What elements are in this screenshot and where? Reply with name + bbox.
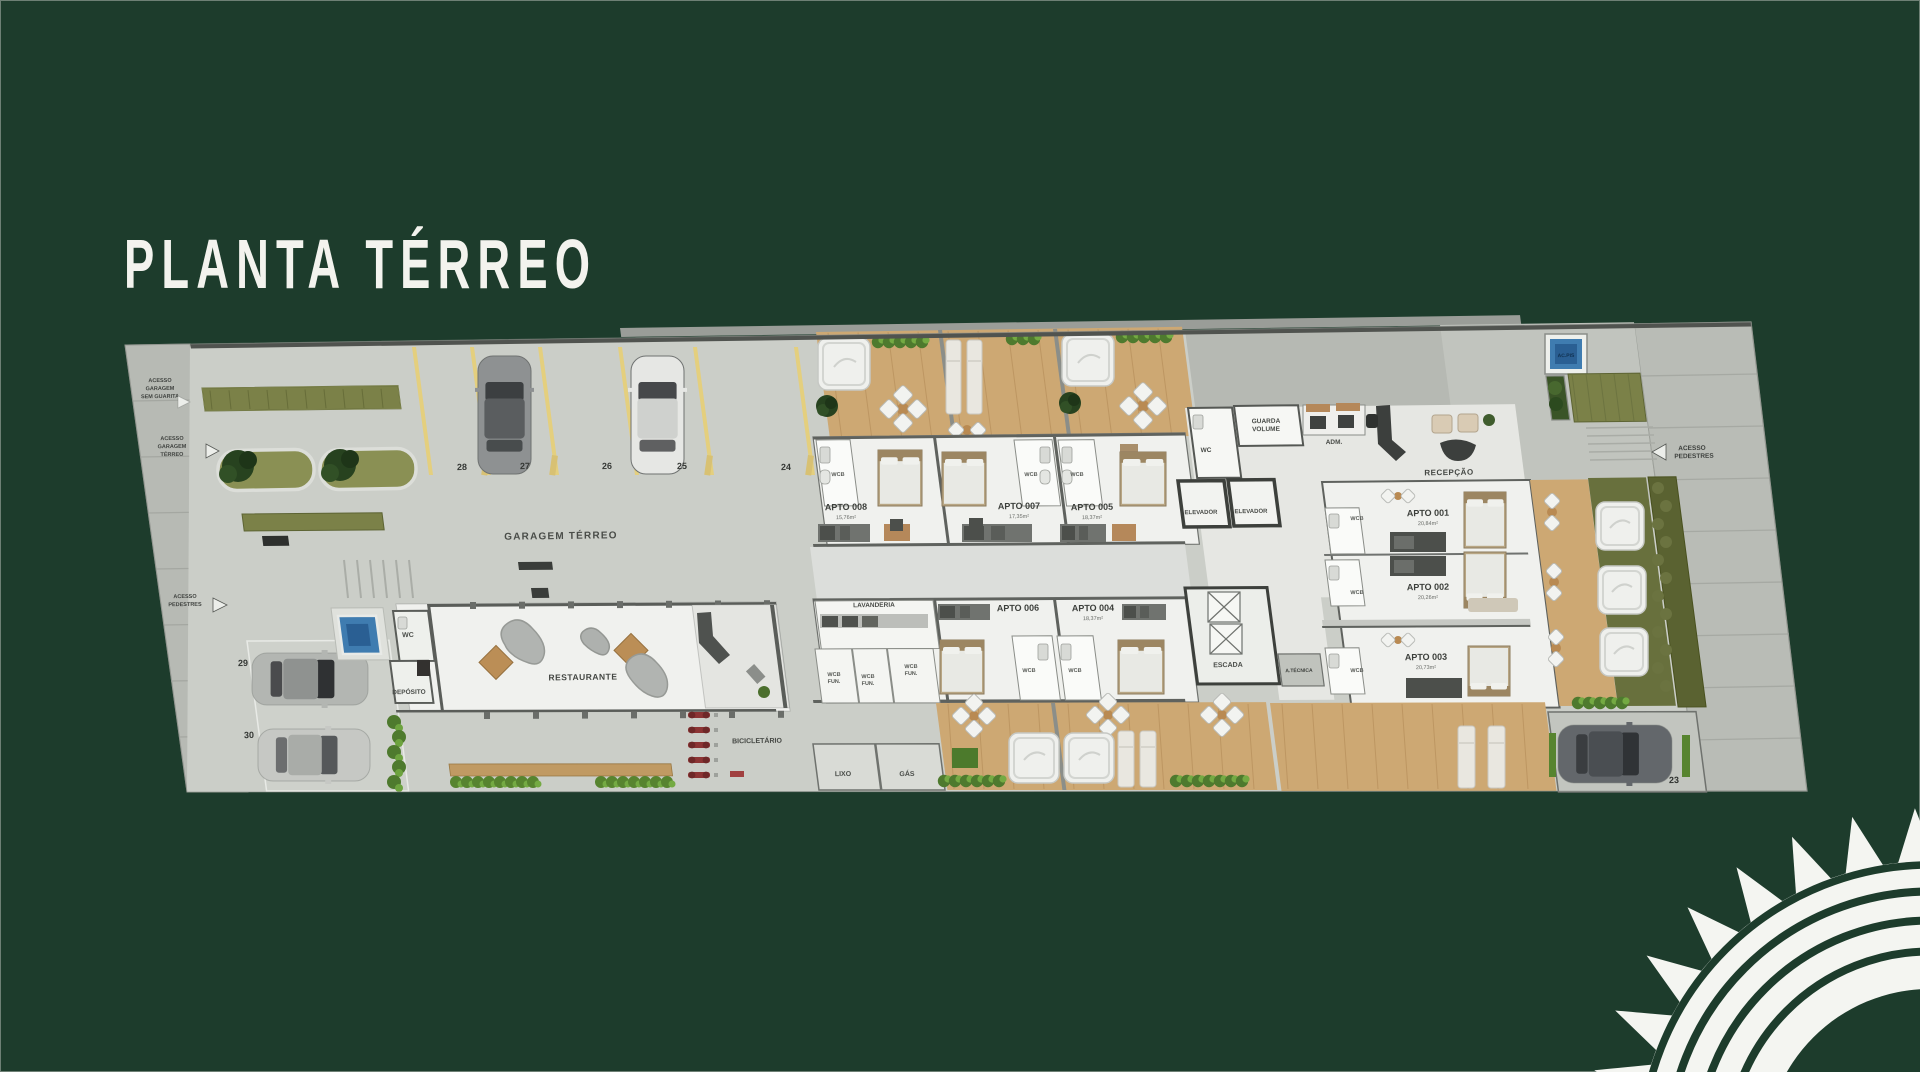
svg-text:20,84m²: 20,84m² xyxy=(1418,521,1438,527)
svg-text:WCB: WCB xyxy=(1350,590,1363,596)
svg-text:PEDESTRES: PEDESTRES xyxy=(1674,453,1714,461)
svg-text:GÁS: GÁS xyxy=(899,769,915,778)
svg-text:23: 23 xyxy=(1669,775,1679,785)
svg-text:LIXO: LIXO xyxy=(835,771,852,778)
svg-text:29: 29 xyxy=(238,658,248,668)
svg-text:ACESSO: ACESSO xyxy=(160,436,184,442)
svg-text:APTO 002: APTO 002 xyxy=(1407,582,1449,593)
svg-text:WCB: WCB xyxy=(831,472,844,478)
svg-text:WCB: WCB xyxy=(827,672,840,678)
svg-text:17,35m²: 17,35m² xyxy=(1009,514,1029,520)
svg-text:WCB: WCB xyxy=(904,664,917,670)
svg-text:APTO 005: APTO 005 xyxy=(1071,502,1113,513)
svg-text:30: 30 xyxy=(244,730,254,740)
svg-text:ELEVADOR: ELEVADOR xyxy=(1184,510,1218,516)
svg-text:ACESSO: ACESSO xyxy=(148,378,172,384)
svg-text:GUARDA: GUARDA xyxy=(1252,418,1281,425)
svg-text:WCB: WCB xyxy=(1350,516,1363,522)
svg-text:28: 28 xyxy=(457,462,467,472)
svg-text:24: 24 xyxy=(781,462,791,472)
svg-text:ACESSO: ACESSO xyxy=(1678,445,1706,452)
svg-text:WCB: WCB xyxy=(1022,668,1035,674)
svg-text:PLANTA TÉRREO: PLANTA TÉRREO xyxy=(124,225,597,303)
svg-text:SEM GUARITA: SEM GUARITA xyxy=(141,394,179,401)
svg-text:WCB: WCB xyxy=(1068,668,1081,674)
svg-text:GARAGEM: GARAGEM xyxy=(146,386,175,392)
svg-text:WCB: WCB xyxy=(1070,472,1083,478)
svg-text:DEPÓSITO: DEPÓSITO xyxy=(392,687,426,696)
svg-text:ESCADA: ESCADA xyxy=(1213,662,1243,669)
svg-text:APTO 003: APTO 003 xyxy=(1405,652,1447,663)
svg-text:15,76m²: 15,76m² xyxy=(836,515,856,521)
svg-text:APTO 006: APTO 006 xyxy=(997,603,1039,614)
svg-text:26: 26 xyxy=(602,461,612,471)
svg-text:APTO 007: APTO 007 xyxy=(998,501,1040,512)
svg-text:PEDESTRES: PEDESTRES xyxy=(168,602,202,608)
svg-text:AC.PIS: AC.PIS xyxy=(1558,353,1575,359)
svg-text:ACESSO: ACESSO xyxy=(173,594,197,600)
svg-text:20,73m²: 20,73m² xyxy=(1416,665,1436,671)
svg-text:FUN.: FUN. xyxy=(828,679,841,685)
svg-text:LAVANDERIA: LAVANDERIA xyxy=(853,602,895,610)
svg-text:20,26m²: 20,26m² xyxy=(1418,595,1438,601)
svg-text:APTO 001: APTO 001 xyxy=(1407,508,1449,519)
svg-text:WC: WC xyxy=(402,632,414,639)
svg-text:WCB: WCB xyxy=(1024,472,1037,478)
svg-text:RECEPÇÃO: RECEPÇÃO xyxy=(1424,468,1473,478)
svg-text:25: 25 xyxy=(677,461,687,471)
svg-text:VOLUME: VOLUME xyxy=(1252,426,1281,433)
svg-text:18,37m²: 18,37m² xyxy=(1083,616,1103,622)
svg-text:27: 27 xyxy=(520,461,530,471)
svg-text:ADM.: ADM. xyxy=(1326,439,1343,446)
svg-text:GARAGEM: GARAGEM xyxy=(158,444,187,450)
svg-text:WCB: WCB xyxy=(861,674,874,680)
svg-text:ELEVADOR: ELEVADOR xyxy=(1234,509,1268,515)
svg-text:FUN.: FUN. xyxy=(905,671,918,677)
svg-text:APTO 004: APTO 004 xyxy=(1072,603,1114,614)
svg-text:WC: WC xyxy=(1201,447,1212,454)
svg-text:APTO 008: APTO 008 xyxy=(825,502,867,513)
svg-text:FUN.: FUN. xyxy=(862,681,875,687)
svg-text:WCB: WCB xyxy=(1350,668,1363,674)
svg-text:18,37m²: 18,37m² xyxy=(1082,515,1102,521)
svg-text:RESTAURANTE: RESTAURANTE xyxy=(548,672,617,683)
